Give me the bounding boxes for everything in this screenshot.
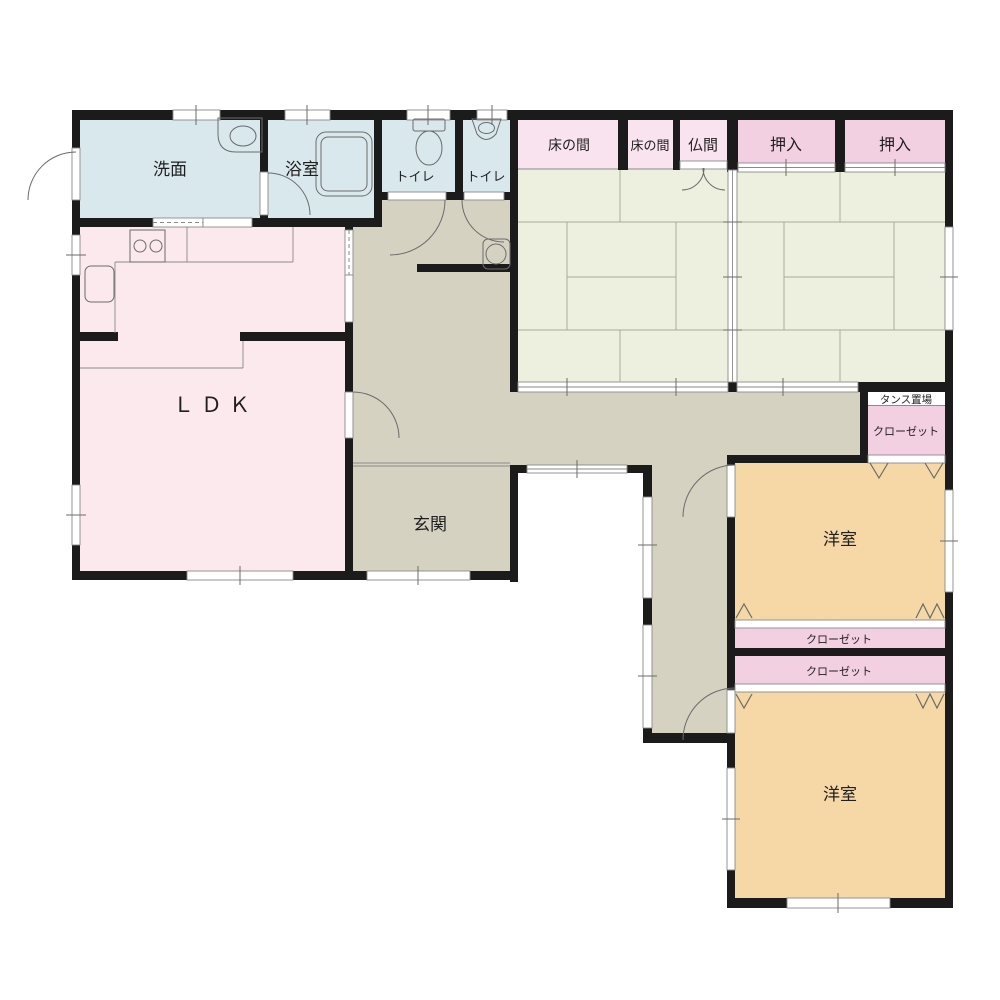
label-western-1: 洋室	[823, 530, 857, 550]
window	[643, 497, 652, 598]
label-tansu: タンス置場	[880, 393, 933, 406]
label-butsuma: 仏間	[688, 136, 718, 154]
door-gap	[680, 161, 727, 169]
floor-plan: 洗面 浴室 トイレ トイレ 床の間 床の間 仏間 押入 押入 ＬＤＫ 玄関 タン…	[0, 0, 1000, 1000]
label-tokonoma-2: 床の間	[630, 139, 669, 154]
door-gap	[260, 172, 268, 215]
label-closet-upper: クローゼット	[873, 425, 939, 438]
hallway-corridor	[353, 392, 860, 465]
door-gap	[727, 465, 735, 517]
window	[945, 227, 953, 330]
label-closet-mid-1: クローゼット	[806, 633, 872, 646]
floor-plan-canvas: 洗面 浴室 トイレ トイレ 床の間 床の間 仏間 押入 押入 ＬＤＫ 玄関 タン…	[0, 0, 1000, 1000]
label-yokushitsu: 浴室	[285, 160, 319, 180]
bifold-door	[735, 684, 945, 692]
door-gap	[388, 192, 446, 200]
label-ldk: ＬＤＫ	[173, 393, 257, 417]
label-toilet-2: トイレ	[466, 170, 505, 185]
sliding-door	[203, 218, 252, 227]
label-oshiire-2: 押入	[879, 135, 911, 154]
label-closet-mid-2: クローゼット	[806, 665, 872, 678]
room-tatami-1	[518, 169, 728, 382]
door-gap	[72, 148, 80, 200]
door-gap	[464, 192, 504, 200]
label-toilet-1: トイレ	[395, 170, 434, 185]
label-senmen: 洗面	[153, 160, 187, 180]
door-gap	[727, 690, 735, 733]
hallway-upper	[382, 200, 510, 227]
label-genkan: 玄関	[413, 515, 447, 535]
bifold-door	[868, 455, 945, 463]
label-oshiire-1: 押入	[770, 135, 802, 154]
door-gap	[345, 392, 353, 438]
sliding-door	[345, 275, 353, 322]
label-tokonoma-1: 床の間	[548, 138, 590, 154]
senmen-back-door-arc	[28, 152, 76, 200]
label-western-2: 洋室	[823, 785, 857, 805]
bifold-door	[735, 620, 945, 628]
